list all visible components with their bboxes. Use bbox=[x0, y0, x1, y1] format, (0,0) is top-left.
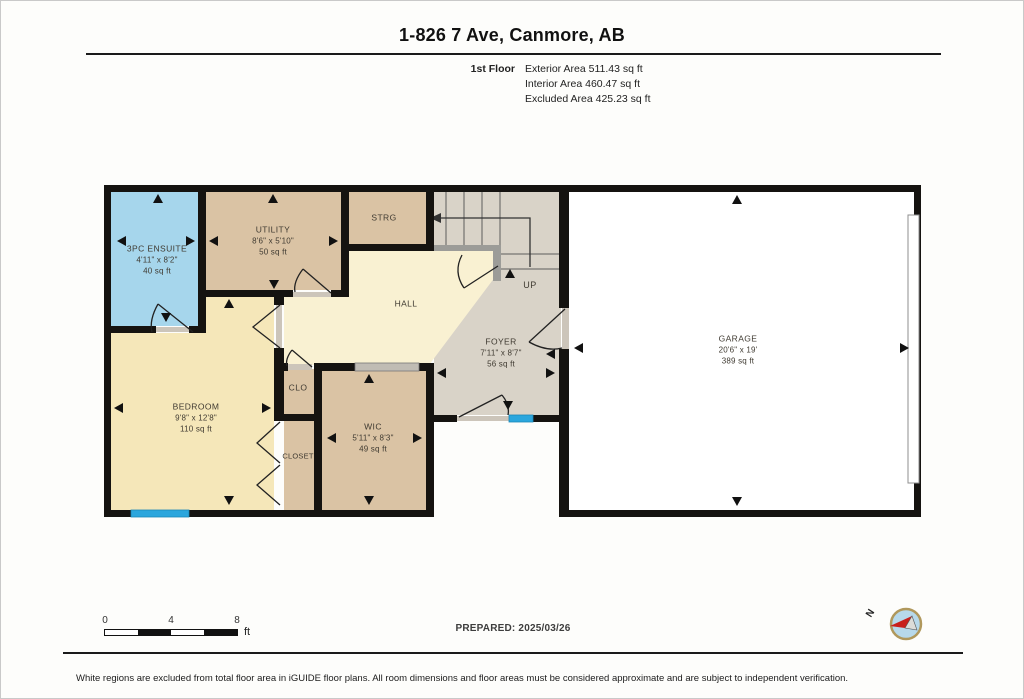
scale-unit-label: ft bbox=[244, 626, 250, 638]
room-label-closet: CLOSET bbox=[282, 451, 313, 462]
room-label-clo: CLO bbox=[289, 383, 308, 394]
footer-disclaimer: White regions are excluded from total fl… bbox=[76, 673, 976, 684]
room-label-hall: HALL bbox=[395, 299, 418, 310]
room-label-strg: STRG bbox=[371, 213, 396, 224]
garage-door bbox=[908, 215, 919, 483]
room-label-utility: UTILITY 8'6" x 5'10" 50 sq ft bbox=[252, 225, 294, 258]
wic-window bbox=[355, 363, 419, 371]
scale-tick-0: 0 bbox=[102, 615, 108, 626]
compass-icon bbox=[890, 609, 921, 639]
room-label-foyer: FOYER 7'11" x 8'7" 56 sq ft bbox=[480, 337, 521, 370]
stairs-up-label: UP bbox=[523, 280, 537, 290]
room-label-garage: GARAGE 20'6" x 19' 389 sq ft bbox=[719, 334, 758, 367]
prepared-date: PREPARED: 2025/03/26 bbox=[381, 623, 645, 634]
scale-tick-8: 8 bbox=[234, 615, 240, 626]
room-label-bedroom: BEDROOM 9'8" x 12'8" 110 sq ft bbox=[173, 402, 220, 435]
scale-bar bbox=[104, 629, 238, 636]
floorplan-page: 1-826 7 Ave, Canmore, AB 1st Floor Exter… bbox=[0, 0, 1024, 699]
room-label-wic: WIC 5'11" x 8'3" 49 sq ft bbox=[352, 422, 393, 455]
room-label-ensuite: 3PC ENSUITE 4'11" x 8'2" 40 sq ft bbox=[127, 244, 187, 277]
scale-tick-4: 4 bbox=[168, 615, 174, 626]
footer-divider bbox=[63, 652, 963, 654]
